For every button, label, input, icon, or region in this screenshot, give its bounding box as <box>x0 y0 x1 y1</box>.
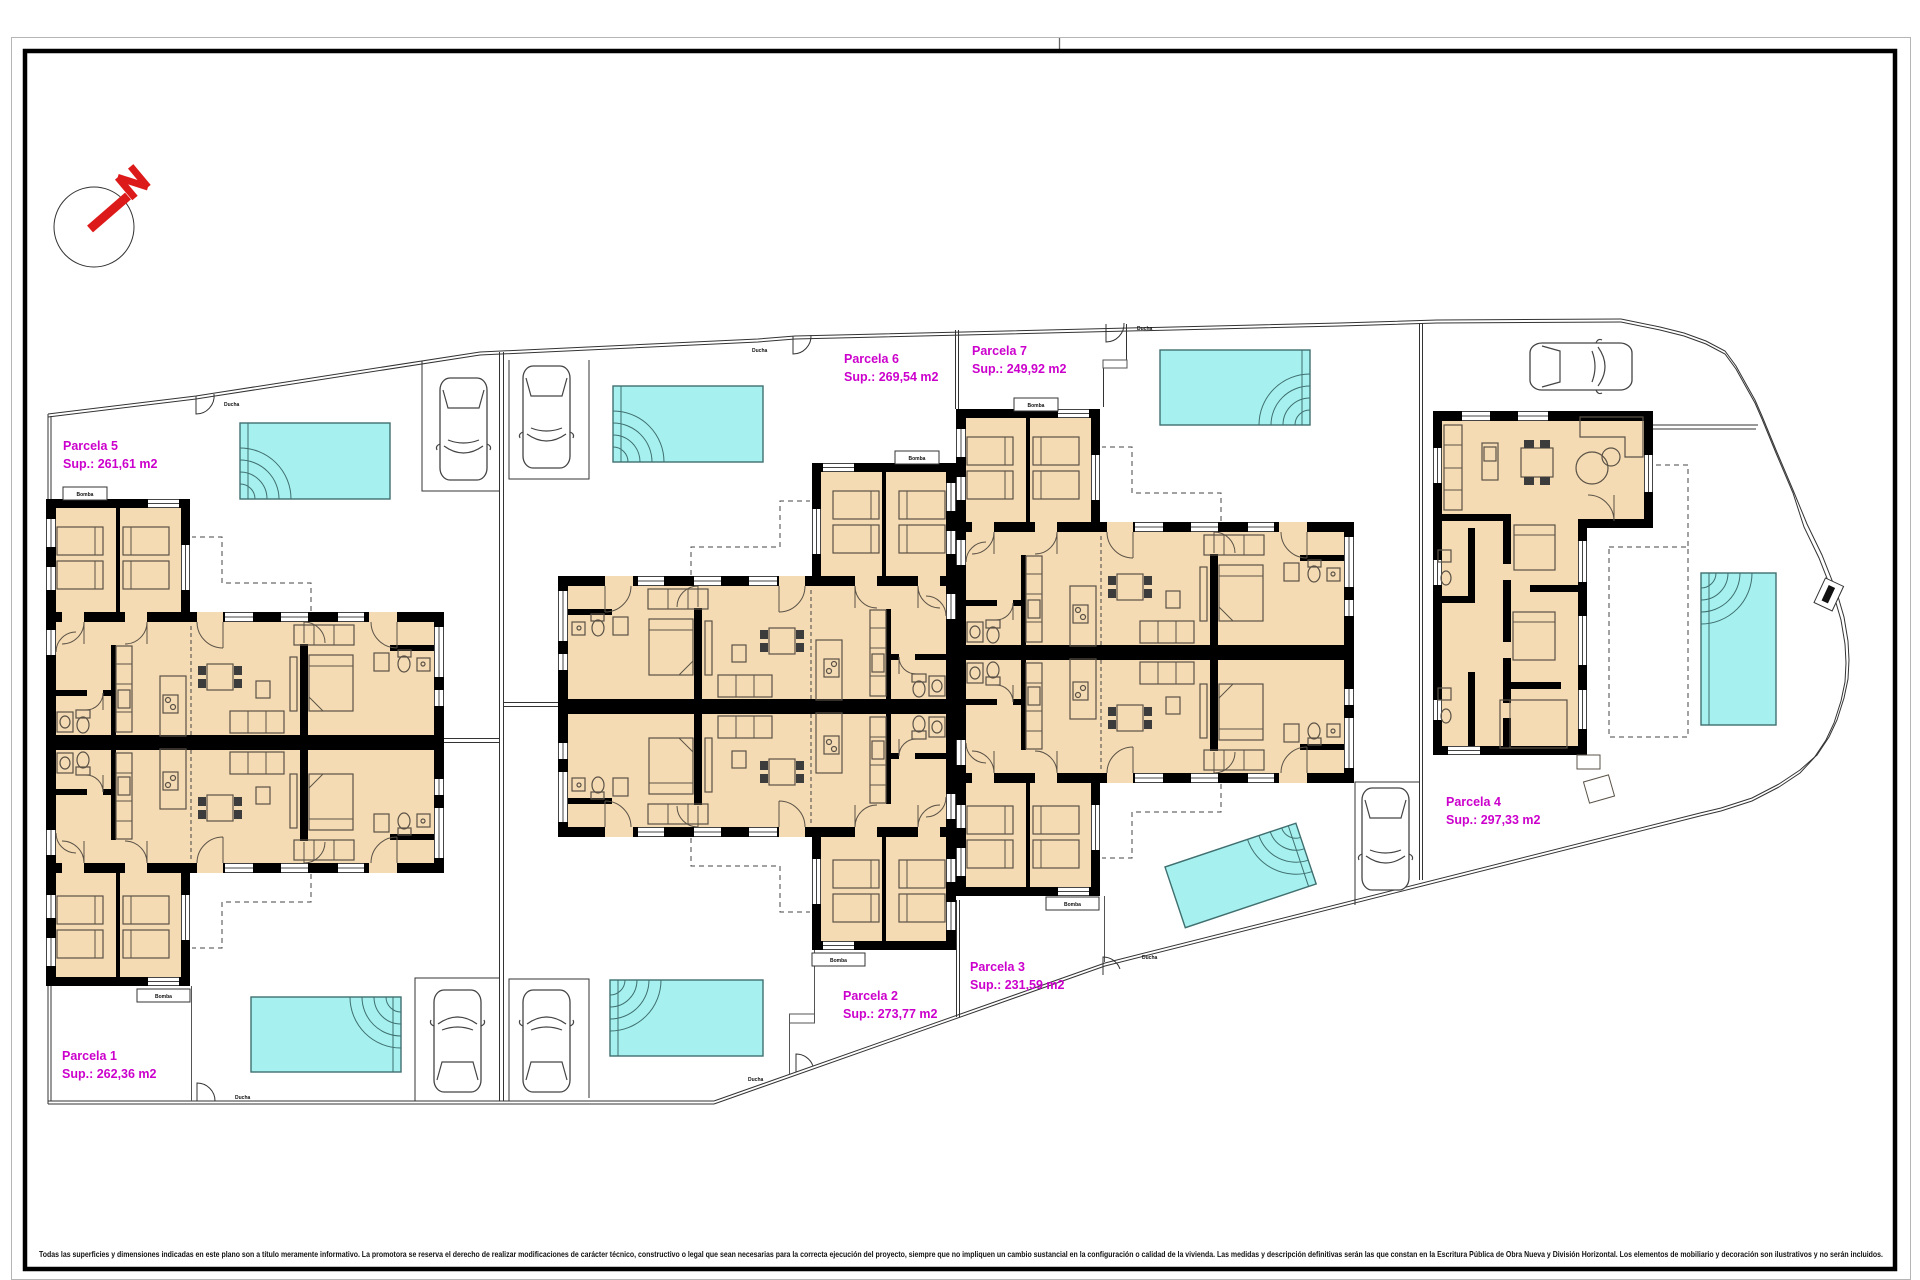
svg-text:Parcela 2: Parcela 2 <box>843 989 898 1003</box>
svg-text:Sup.: 273,77 m2: Sup.: 273,77 m2 <box>843 1007 938 1021</box>
svg-text:Bomba: Bomba <box>1064 902 1081 908</box>
svg-text:Sup.: 262,36 m2: Sup.: 262,36 m2 <box>62 1067 157 1081</box>
svg-text:Parcela 3: Parcela 3 <box>970 960 1025 974</box>
svg-text:Parcela 6: Parcela 6 <box>844 352 899 366</box>
svg-text:Bomba: Bomba <box>909 456 926 462</box>
svg-text:Sup.: 261,61 m2: Sup.: 261,61 m2 <box>63 457 158 471</box>
svg-text:Ducha: Ducha <box>748 1077 764 1083</box>
svg-text:Parcela 4: Parcela 4 <box>1446 795 1501 809</box>
svg-text:Sup.: 231,59 m2: Sup.: 231,59 m2 <box>970 978 1065 992</box>
svg-text:Ducha: Ducha <box>752 348 768 354</box>
svg-text:Parcela 1: Parcela 1 <box>62 1049 117 1063</box>
svg-text:Ducha: Ducha <box>224 402 240 408</box>
svg-text:Ducha: Ducha <box>235 1095 251 1101</box>
svg-text:Bomba: Bomba <box>77 492 94 498</box>
svg-text:Todas las superficies y dimens: Todas las superficies y dimensiones indi… <box>39 1249 1883 1259</box>
svg-text:Bomba: Bomba <box>830 958 847 964</box>
svg-text:Sup.: 249,92 m2: Sup.: 249,92 m2 <box>972 362 1067 376</box>
svg-text:Parcela 5: Parcela 5 <box>63 439 118 453</box>
svg-text:Parcela 7: Parcela 7 <box>972 344 1027 358</box>
svg-text:Sup.: 297,33 m2: Sup.: 297,33 m2 <box>1446 813 1541 827</box>
svg-text:Bomba: Bomba <box>1028 403 1045 409</box>
svg-text:Sup.: 269,54 m2: Sup.: 269,54 m2 <box>844 370 939 384</box>
svg-text:Ducha: Ducha <box>1142 955 1158 961</box>
svg-text:Bomba: Bomba <box>155 994 172 1000</box>
svg-text:Ducha: Ducha <box>1137 326 1153 332</box>
